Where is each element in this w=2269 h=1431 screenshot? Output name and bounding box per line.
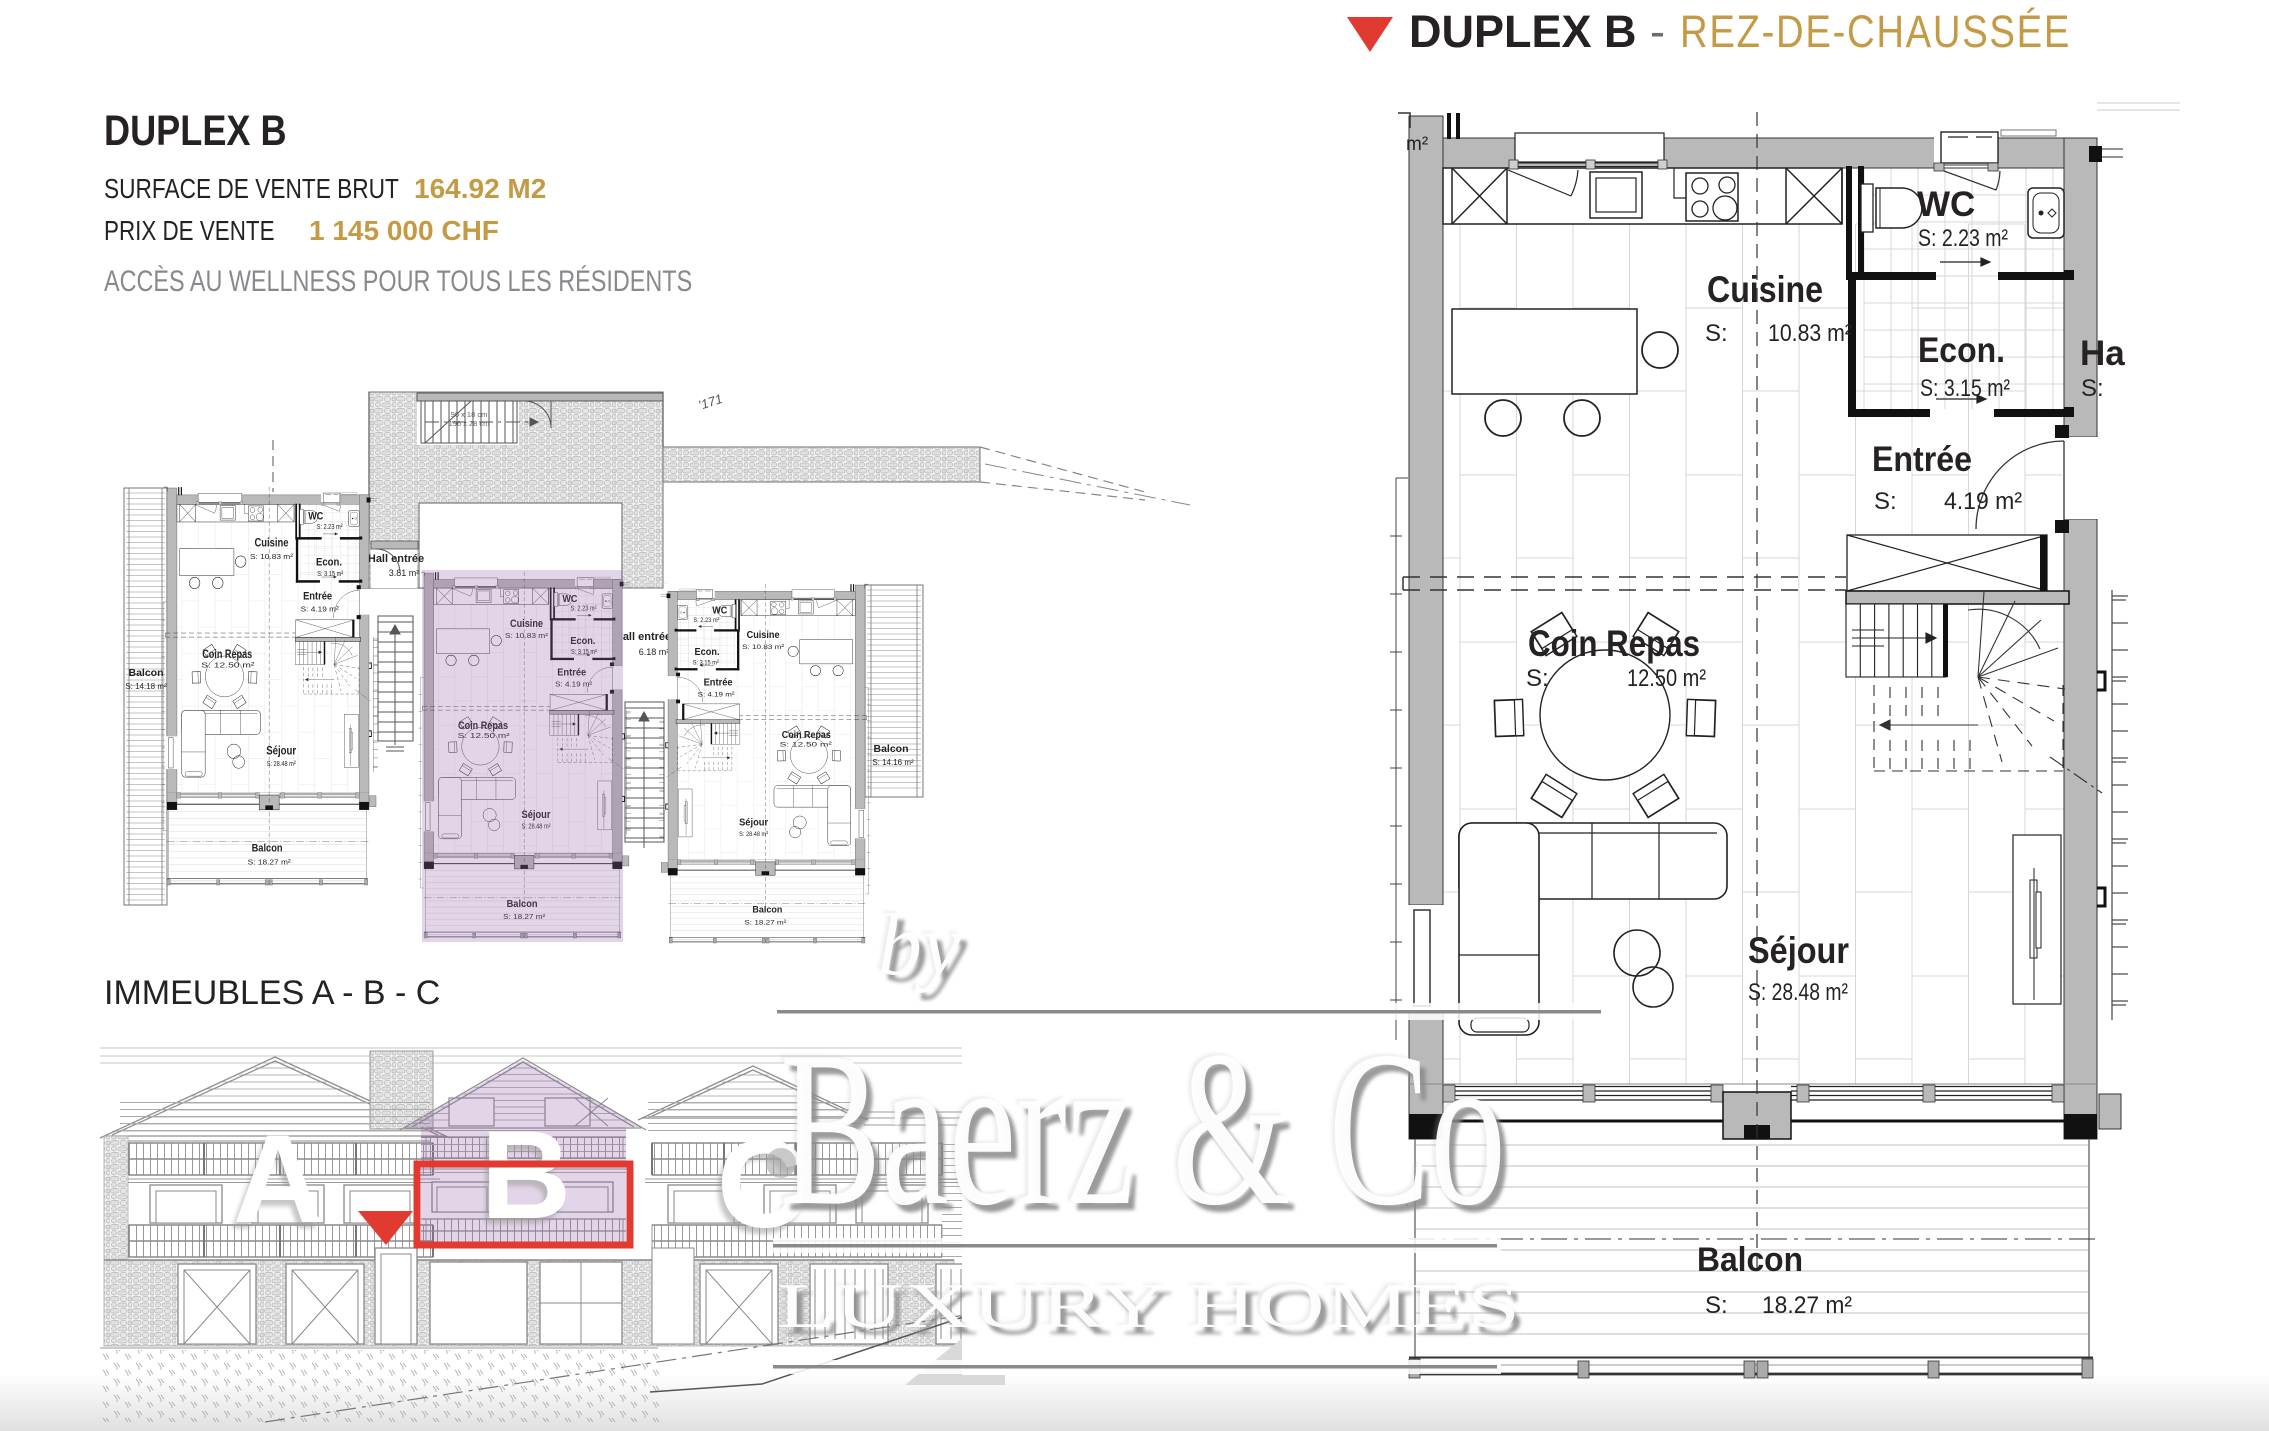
svg-text:LUXURY HOMES: LUXURY HOMES bbox=[777, 1270, 1520, 1341]
svg-text:by: by bbox=[878, 897, 962, 994]
svg-text:Baerz & Co: Baerz & Co bbox=[780, 1006, 1506, 1252]
